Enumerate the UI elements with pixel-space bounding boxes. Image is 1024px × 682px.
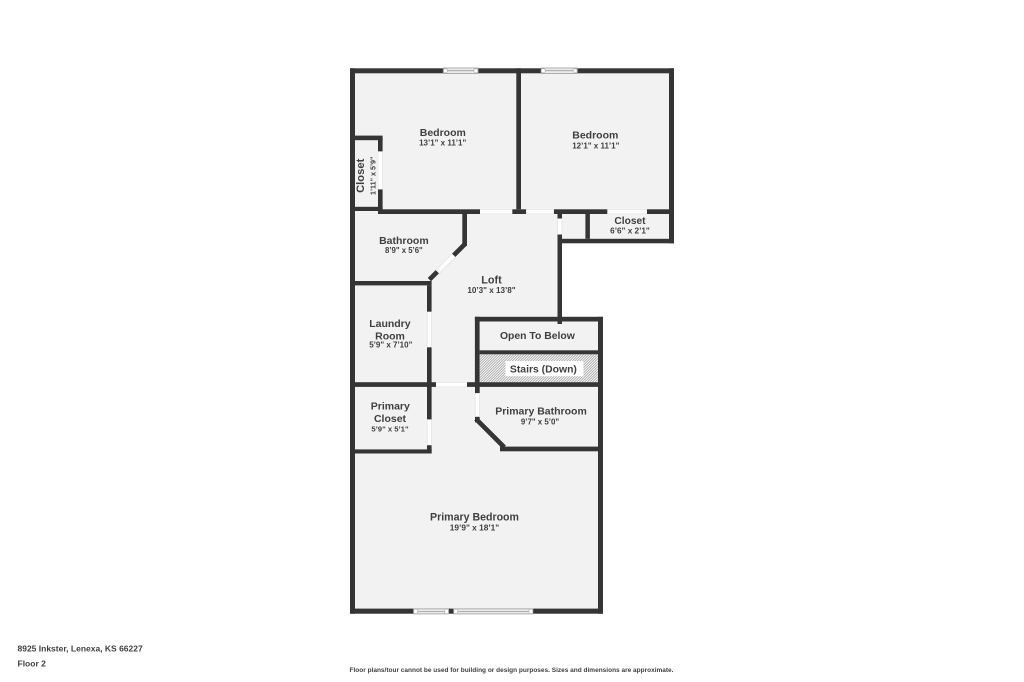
svg-text:Open To Below: Open To Below (500, 331, 576, 342)
svg-text:Stairs (Down): Stairs (Down) (510, 365, 577, 376)
svg-text:6’6" x 2’1": 6’6" x 2’1" (610, 227, 650, 236)
svg-text:5’9" x 5’1": 5’9" x 5’1" (371, 425, 409, 434)
svg-text:Floor 2: Floor 2 (18, 659, 47, 669)
svg-text:19’9" x 18’1": 19’9" x 18’1" (450, 522, 499, 532)
svg-text:1’11" x 5’9": 1’11" x 5’9" (368, 157, 377, 195)
svg-text:12’1" x 11’1": 12’1" x 11’1" (572, 141, 619, 150)
svg-text:8’9" x 5’6": 8’9" x 5’6" (385, 246, 423, 255)
svg-text:Closet: Closet (374, 413, 407, 425)
svg-text:Primary Bathroom: Primary Bathroom (495, 405, 587, 417)
svg-text:8925 Inkster, Lenexa, KS 66227: 8925 Inkster, Lenexa, KS 66227 (18, 643, 143, 653)
svg-text:5’9" x 7’10": 5’9" x 7’10" (369, 341, 412, 350)
svg-text:9’7" x 5’0": 9’7" x 5’0" (521, 418, 559, 427)
svg-text:13’1" x 11’1": 13’1" x 11’1" (419, 138, 466, 147)
svg-text:Closet: Closet (355, 158, 367, 192)
svg-text:Bedroom: Bedroom (420, 127, 466, 139)
svg-text:Loft: Loft (481, 275, 502, 287)
svg-text:Bedroom: Bedroom (572, 130, 618, 142)
svg-text:Closet: Closet (614, 216, 646, 227)
svg-text:Floor plans/tour cannot be use: Floor plans/tour cannot be used for buil… (350, 667, 674, 674)
svg-text:Primary: Primary (371, 400, 410, 412)
svg-text:10’3" x 13’8": 10’3" x 13’8" (467, 286, 515, 295)
svg-text:Laundry: Laundry (369, 318, 411, 330)
